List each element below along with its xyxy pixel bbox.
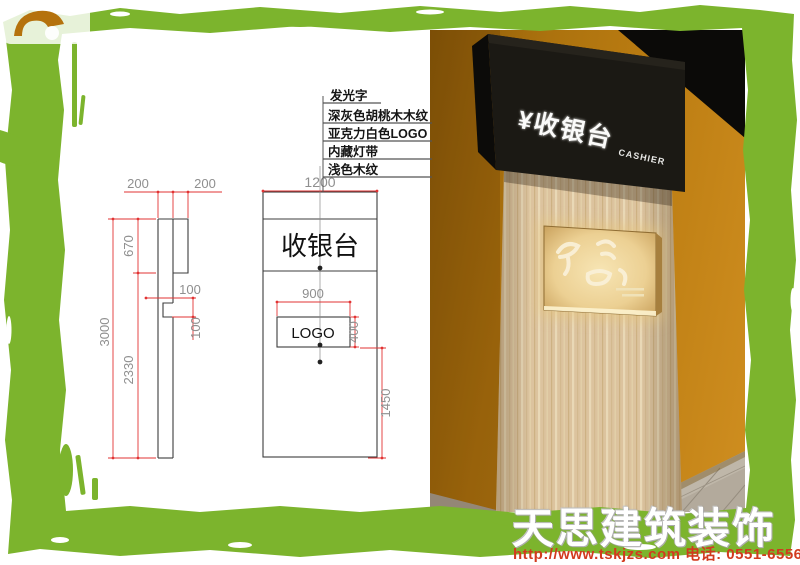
dim-3000: 3000 <box>97 318 112 347</box>
side-view-dim-labels: 200 200 3000 670 2330 100 100 <box>97 176 216 384</box>
callout-block: 发光字 深灰色胡桃木木纹 亚克力白色LOGO 内藏灯带 浅色木纹 <box>323 88 432 192</box>
callout-light-wood-grain: 浅色木纹 <box>328 162 379 177</box>
front-view-dim-labels: 1200 900 400 1450 <box>302 174 393 417</box>
watermark-contact: http://www.tskjzs.com 电话: 0551-65568226 <box>513 543 800 564</box>
dim-670: 670 <box>121 235 136 257</box>
front-view-logo-text: LOGO <box>291 325 334 342</box>
callout-luminous-letters: 发光字 <box>329 88 368 103</box>
dim-900: 900 <box>302 286 324 301</box>
dim-400: 400 <box>346 321 361 343</box>
callout-acrylic-logo: 亚克力白色LOGO <box>328 126 428 141</box>
side-view-outline <box>158 219 188 458</box>
cad-drawing-panel: 200 200 3000 670 2330 100 100 <box>0 0 800 565</box>
side-view-dim-ticks <box>112 191 195 460</box>
dim-200-left: 200 <box>127 176 149 191</box>
dim-2330: 2330 <box>121 356 136 385</box>
dim-100-h: 100 <box>179 282 201 297</box>
front-view-sign-text: 收银台 <box>281 231 359 261</box>
watermark-logo <box>0 0 95 46</box>
dim-200-right: 200 <box>194 176 216 191</box>
dim-100-v: 100 <box>188 317 203 339</box>
side-view-dim-lines <box>108 192 222 458</box>
design-sheet: 200 200 3000 670 2330 100 100 <box>0 0 800 565</box>
callout-hidden-lightstrip: 内藏灯带 <box>328 144 379 159</box>
callout-walnut-grain: 深灰色胡桃木木纹 <box>328 108 429 123</box>
dim-1450: 1450 <box>378 389 393 418</box>
